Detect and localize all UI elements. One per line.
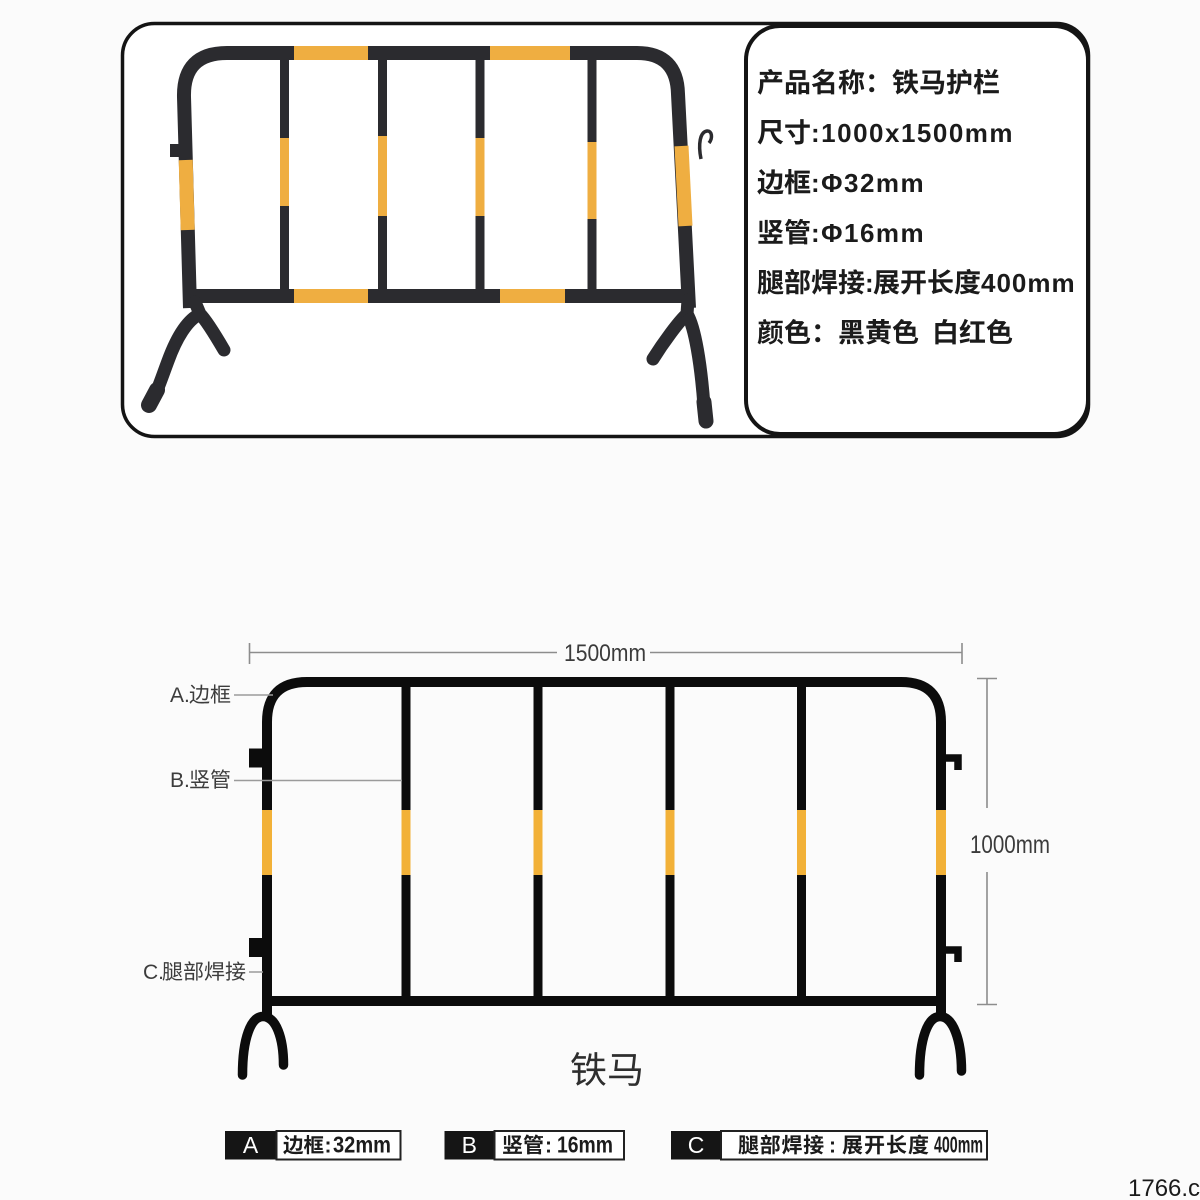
- svg-text:A: A: [243, 1132, 259, 1158]
- svg-text:1000mm: 1000mm: [970, 831, 1050, 859]
- svg-text:32mm: 32mm: [333, 1132, 391, 1158]
- svg-text:16mm: 16mm: [557, 1132, 613, 1158]
- svg-text::Φ32mm: :Φ32mm: [811, 168, 925, 198]
- svg-text:1500mm: 1500mm: [564, 640, 646, 667]
- svg-text:400mm: 400mm: [981, 268, 1076, 298]
- svg-text:B: B: [462, 1132, 477, 1158]
- svg-text:C: C: [688, 1132, 705, 1158]
- svg-text:A.: A.: [170, 684, 190, 707]
- svg-text:1766.cn: 1766.cn: [1128, 1175, 1200, 1200]
- svg-text::: :: [545, 1135, 552, 1158]
- svg-text:400mm: 400mm: [934, 1132, 983, 1158]
- svg-text::1000x1500mm: :1000x1500mm: [811, 118, 1014, 148]
- svg-text::Φ16mm: :Φ16mm: [811, 218, 925, 248]
- svg-text:B.: B.: [170, 769, 190, 792]
- svg-text::: :: [325, 1135, 332, 1158]
- svg-text::: :: [865, 268, 874, 298]
- svg-text:C.: C.: [143, 961, 164, 984]
- svg-text::: :: [829, 1135, 836, 1158]
